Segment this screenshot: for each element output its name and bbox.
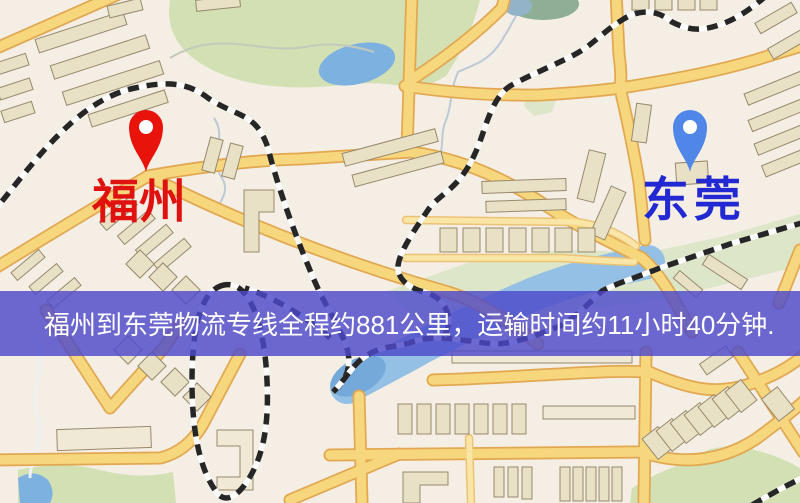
- origin-pin-icon[interactable]: [129, 110, 163, 172]
- route-info-text: 福州到东莞物流专线全程约881公里，运输时间约11小时40分钟.: [0, 305, 775, 342]
- route-info-banner: 福州到东莞物流专线全程约881公里，运输时间约11小时40分钟.: [0, 291, 800, 356]
- destination-city-label: 东莞: [642, 177, 746, 224]
- map-screenshot: 福州 东莞 福州到东莞物流专线全程约881公里，运输时间约11小时40分钟.: [0, 0, 800, 503]
- origin-city-label: 福州: [92, 179, 186, 226]
- map-canvas: [0, 0, 800, 503]
- destination-pin-icon[interactable]: [673, 110, 707, 172]
